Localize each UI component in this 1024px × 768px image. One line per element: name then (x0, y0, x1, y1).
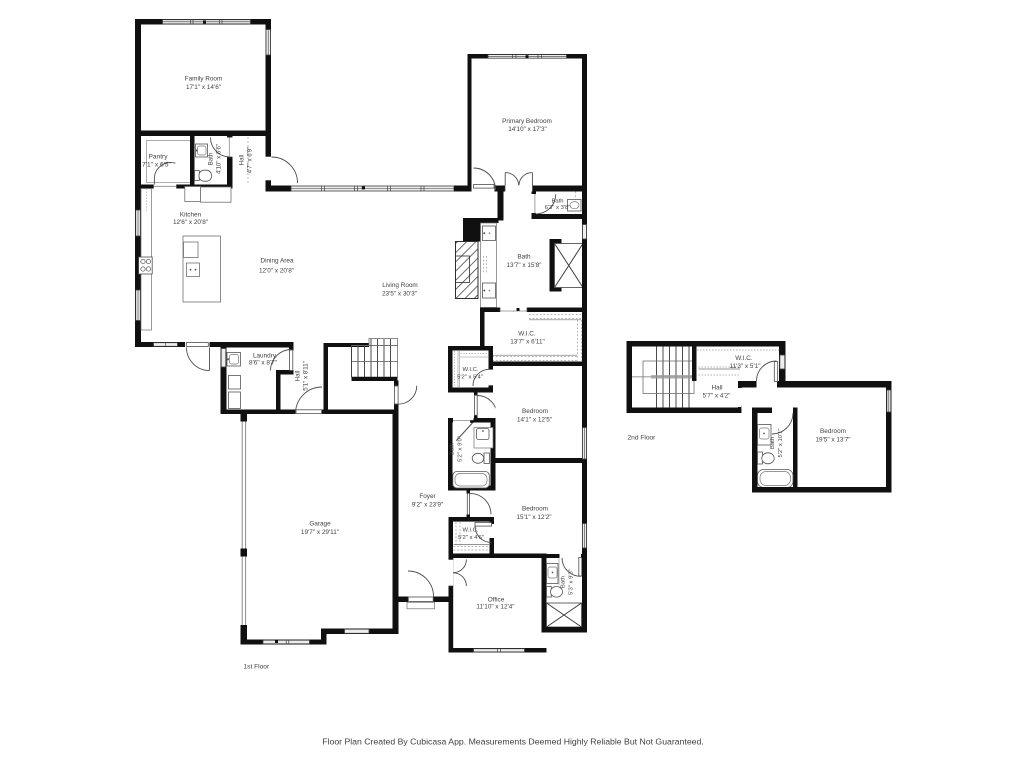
svg-text:5'2" x 10'1": 5'2" x 10'1" (778, 428, 784, 457)
svg-text:5'2" x 9'0": 5'2" x 9'0" (458, 436, 464, 462)
svg-text:Foyer: Foyer (419, 493, 436, 500)
svg-text:Family Room: Family Room (185, 76, 223, 83)
svg-text:12'0" x 20'8": 12'0" x 20'8" (259, 268, 294, 275)
svg-text:Pantry: Pantry (148, 154, 168, 161)
svg-text:7'1" x 6'5": 7'1" x 6'5" (142, 162, 171, 169)
svg-text:5'2" x 4'6": 5'2" x 4'6" (458, 535, 484, 541)
svg-text:19'7" x 29'11": 19'7" x 29'11" (301, 529, 339, 536)
svg-text:14'10" x 17'3": 14'10" x 17'3" (508, 126, 547, 133)
svg-text:Bedroom: Bedroom (820, 428, 846, 435)
svg-text:W.I.C.: W.I.C. (518, 331, 536, 338)
svg-text:Hall: Hall (711, 385, 722, 392)
svg-text:5'7" x 4'2": 5'7" x 4'2" (703, 393, 731, 400)
svg-text:Bedroom: Bedroom (522, 408, 548, 415)
svg-text:12'6" x 20'8": 12'6" x 20'8" (173, 219, 208, 226)
svg-text:19'5" x 13'7": 19'5" x 13'7" (815, 437, 850, 444)
svg-text:Bath: Bath (561, 576, 567, 588)
svg-text:Hall: Hall (239, 155, 246, 166)
svg-text:11'3" x 5'1": 11'3" x 5'1" (729, 363, 760, 370)
svg-text:Bath: Bath (517, 254, 531, 261)
svg-text:13'7" x 6'11": 13'7" x 6'11" (510, 339, 545, 346)
svg-text:11'10" x 12'4": 11'10" x 12'4" (476, 604, 514, 611)
svg-text:8'6" x 8'7": 8'6" x 8'7" (249, 360, 277, 367)
svg-text:15'1" x 12'2": 15'1" x 12'2" (516, 514, 551, 521)
svg-text:Primary Bedroom: Primary Bedroom (502, 118, 552, 125)
svg-text:Kitchen: Kitchen (180, 212, 202, 219)
svg-text:4'10" x 6'6": 4'10" x 6'6" (216, 144, 223, 174)
svg-text:Bedroom: Bedroom (522, 506, 548, 513)
svg-text:Laundry: Laundry (253, 353, 277, 360)
svg-text:Floor Plan Created By Cubicasa: Floor Plan Created By Cubicasa App. Meas… (322, 737, 703, 747)
svg-text:Bath: Bath (551, 199, 563, 205)
svg-text:17'1" x 14'6": 17'1" x 14'6" (186, 84, 221, 91)
svg-text:W.I.C.: W.I.C. (462, 528, 478, 534)
svg-text:1st Floor: 1st Floor (244, 664, 270, 671)
svg-text:Bath: Bath (450, 443, 456, 455)
svg-text:9'2" x 23'9": 9'2" x 23'9" (412, 502, 444, 509)
svg-text:Dining Area: Dining Area (260, 258, 293, 265)
svg-text:Living Room: Living Room (382, 282, 418, 289)
svg-text:14'1" x 12'5": 14'1" x 12'5" (517, 417, 552, 424)
svg-text:Bath: Bath (208, 153, 215, 166)
svg-text:W.I.C.: W.I.C. (735, 355, 753, 362)
svg-text:6'3" x 3'8": 6'3" x 3'8" (545, 205, 571, 211)
svg-text:5'3" x 9'3": 5'3" x 9'3" (569, 569, 575, 595)
svg-text:Bath: Bath (770, 437, 776, 449)
svg-text:23'5" x 30'3": 23'5" x 30'3" (382, 291, 417, 298)
svg-text:W.I.C.: W.I.C. (462, 367, 478, 373)
svg-text:4'7" x 6'9": 4'7" x 6'9" (247, 147, 254, 174)
svg-text:5'2" x 5'4": 5'2" x 5'4" (457, 375, 483, 381)
svg-text:Office: Office (488, 597, 505, 604)
svg-text:5'1" x 8'11": 5'1" x 8'11" (303, 361, 310, 391)
svg-text:2nd Floor: 2nd Floor (628, 435, 657, 442)
svg-text:13'7" x 15'8": 13'7" x 15'8" (506, 262, 541, 269)
svg-text:Garage: Garage (309, 521, 331, 528)
svg-text:Hall: Hall (295, 371, 302, 382)
